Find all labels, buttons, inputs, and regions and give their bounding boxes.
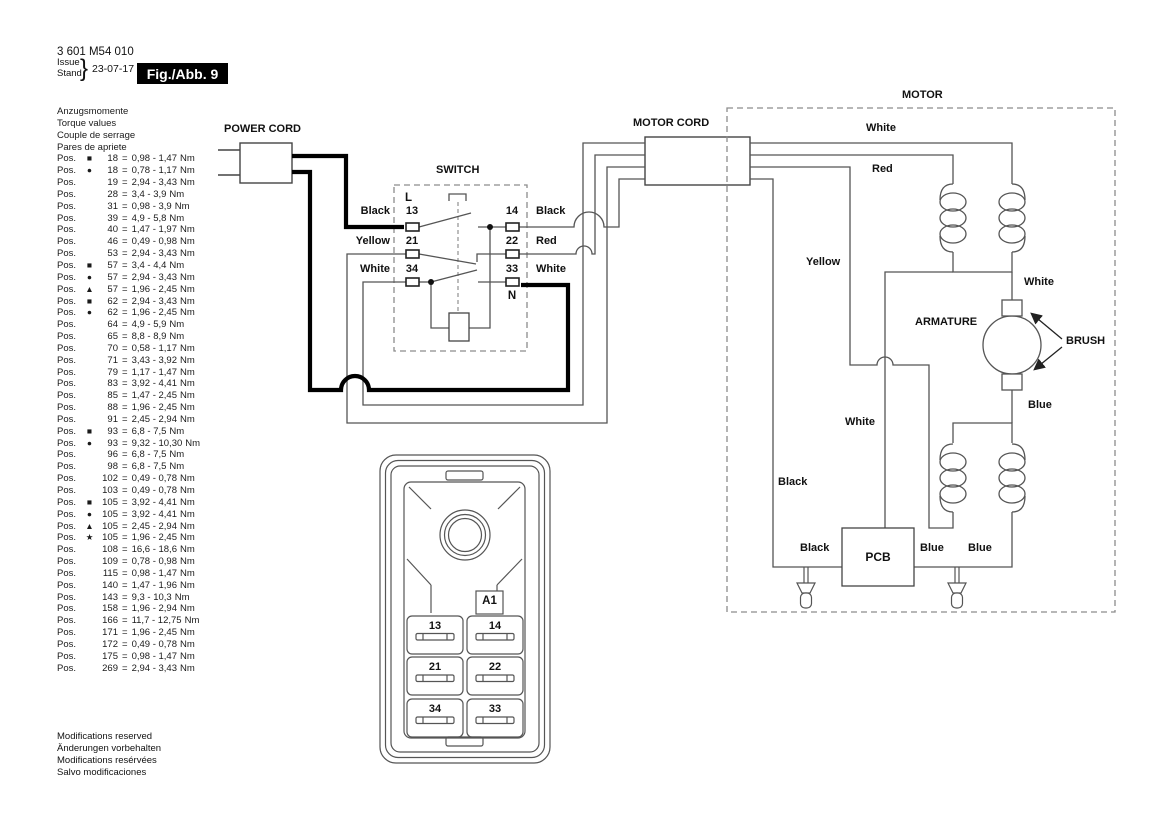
wire-label-black-13: Black xyxy=(350,205,390,217)
wiring-diagram-page: 3 601 M54 010 Issue Stand } 23-07-17 Fig… xyxy=(0,0,1169,826)
white-wire-to-pcb xyxy=(885,272,953,528)
terminal-cells xyxy=(407,616,523,737)
terminal-22-box xyxy=(506,250,519,258)
brush-arrow-top xyxy=(1032,314,1062,339)
armature-circle xyxy=(983,316,1041,374)
wire-label-yellow-motor: Yellow xyxy=(806,256,840,268)
a1-label: A1 xyxy=(476,595,503,607)
wire-label-yellow-21: Yellow xyxy=(348,235,390,247)
field-junction-bottom xyxy=(953,423,1012,443)
field-coil-bottom-right xyxy=(999,444,1025,512)
terminal-21-number: 21 xyxy=(402,235,422,247)
wire-label-white-33: White xyxy=(536,263,566,275)
terminal-33-number: 33 xyxy=(502,263,522,275)
wire-label-black-motor: Black xyxy=(778,476,807,488)
contact-pole2-moving xyxy=(419,254,476,264)
contact-pole1-moving xyxy=(419,213,471,227)
terminal-13-number: 13 xyxy=(402,205,422,217)
armature-label: ARMATURE xyxy=(915,316,977,328)
brush-arrow-bottom xyxy=(1035,347,1062,369)
black-wire-switch-to-motorcord xyxy=(519,179,645,227)
switch-label: SWITCH xyxy=(436,164,479,176)
switch-housing-mid xyxy=(386,461,545,758)
contact-pole3-moving xyxy=(431,270,477,282)
contact-pole2-fixed xyxy=(477,254,506,262)
face-bevel-br xyxy=(497,559,522,585)
actuator-hole-inner xyxy=(449,519,482,552)
motor-dashed-boundary xyxy=(727,108,1115,612)
wire-label-white-brush: White xyxy=(1024,276,1054,288)
module-terminal-14: 14 xyxy=(483,620,507,632)
power-cord-label: POWER CORD xyxy=(224,123,301,135)
junction-dot-14 xyxy=(487,224,493,230)
terminal-14-box xyxy=(506,223,519,231)
neutral-terminal-label: N xyxy=(504,290,520,302)
field-coil-top-right xyxy=(999,184,1025,252)
module-terminal-21: 21 xyxy=(423,661,447,673)
switch-actuator-icon xyxy=(449,194,466,201)
schematic-svg xyxy=(0,0,1169,826)
wire-label-blue-brush: Blue xyxy=(1028,399,1052,411)
terminal-34-number: 34 xyxy=(402,263,422,275)
face-bevel-tr xyxy=(498,487,520,509)
face-bevel-bl xyxy=(407,559,431,585)
brush-top xyxy=(1002,300,1022,316)
spade-connector-black xyxy=(797,567,815,608)
switch-module-component xyxy=(449,313,469,341)
field-coil-top-left xyxy=(940,184,966,252)
red-wire-motor-field xyxy=(750,155,953,184)
brush-bottom xyxy=(1002,374,1022,390)
wire-label-white-34: White xyxy=(350,263,390,275)
switch-top-tab xyxy=(446,471,483,480)
wire-label-blue-1: Blue xyxy=(920,542,944,554)
motor-internals xyxy=(842,184,1062,586)
terminal-22-number: 22 xyxy=(502,235,522,247)
pcb-label: PCB xyxy=(842,550,914,564)
module-wire-right xyxy=(469,227,490,328)
motor-cord-box xyxy=(645,137,750,185)
terminal-13-box xyxy=(406,223,419,231)
power-cord-plug xyxy=(218,143,292,183)
yellow-wire-motor-field xyxy=(750,167,953,528)
motor-cord-label: MOTOR CORD xyxy=(633,117,709,129)
face-bevel-tl xyxy=(409,487,431,509)
module-terminal-34: 34 xyxy=(423,703,447,715)
field-coil-bottom-left xyxy=(940,444,966,512)
motor-label: MOTOR xyxy=(902,89,943,101)
junction-dot-34 xyxy=(428,279,434,285)
wire-label-red-22: Red xyxy=(536,235,557,247)
wire-label-red-top: Red xyxy=(872,163,893,175)
module-terminal-13: 13 xyxy=(423,620,447,632)
switch-module-drawing xyxy=(380,455,550,763)
black-wire-to-pcb xyxy=(750,179,842,567)
brush-label: BRUSH xyxy=(1066,335,1105,347)
spade-connector-blue xyxy=(948,567,966,608)
wire-label-white-top: White xyxy=(866,122,896,134)
terminal-21-box xyxy=(406,250,419,258)
module-terminal-33: 33 xyxy=(483,703,507,715)
wire-label-white-pcb: White xyxy=(845,416,875,428)
actuator-hole-outer xyxy=(440,510,490,560)
wire-label-black-connector: Black xyxy=(800,542,829,554)
switch-internals xyxy=(419,194,506,341)
wire-label-blue-2: Blue xyxy=(968,542,992,554)
thin-wires xyxy=(347,143,1012,567)
field-junction-top xyxy=(953,252,1012,272)
wire-label-black-14: Black xyxy=(536,205,565,217)
terminal-34-box xyxy=(406,278,419,286)
module-wire-left xyxy=(431,282,449,328)
terminal-14-number: 14 xyxy=(502,205,522,217)
terminal-33-box xyxy=(506,278,519,286)
line-terminal-label: L xyxy=(405,192,412,204)
switch-housing-inner xyxy=(391,466,539,752)
yellow-wire-switch-to-motorcord xyxy=(347,167,645,423)
actuator-hole-mid xyxy=(445,515,486,556)
module-terminal-22: 22 xyxy=(483,661,507,673)
